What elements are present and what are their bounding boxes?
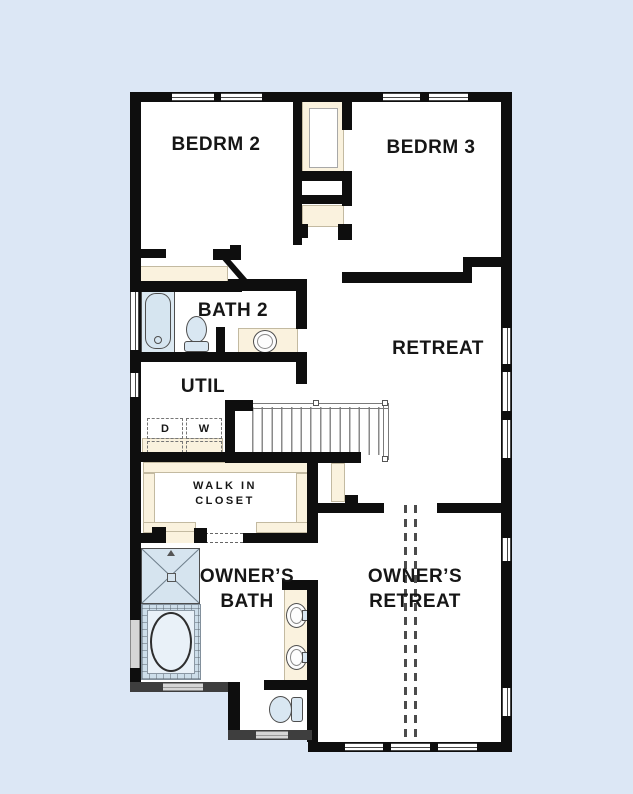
closet-shelf-bottom-right	[256, 522, 308, 533]
window	[383, 93, 421, 101]
window	[130, 292, 139, 350]
window-mullion	[420, 92, 429, 102]
wall-segment	[130, 452, 230, 462]
wall-segment	[225, 452, 361, 463]
wall-segment	[216, 327, 225, 354]
wall-segment	[194, 528, 207, 543]
window	[502, 372, 511, 412]
wall-segment	[463, 257, 472, 283]
window-mullion	[383, 743, 391, 751]
wall-segment	[342, 272, 471, 283]
owners-bathtub-fixture	[150, 612, 192, 672]
wall-segment	[293, 195, 352, 204]
room-label-text: RETREAT	[392, 338, 484, 359]
room-label-walk-in-closet: WALK IN CLOSET	[165, 479, 285, 509]
room-label-util: UTIL	[163, 374, 243, 399]
wall-segment	[225, 400, 253, 411]
floor-plan: BEDRM 2 BEDRM 3 BATH 2 RETREAT UTIL WALK…	[0, 0, 633, 794]
bathtub-drain	[154, 336, 162, 344]
wall-segment	[296, 279, 307, 329]
window	[502, 420, 511, 458]
room-label-owners-retreat: OWNER’S RETREAT	[355, 564, 475, 614]
room-label-text: WALK IN	[165, 479, 285, 494]
wall-segment	[307, 452, 318, 543]
room-label-text: BEDRM 2	[171, 134, 260, 155]
linen-shelf	[331, 463, 345, 502]
wall-segment	[295, 224, 308, 238]
stairs	[252, 407, 385, 455]
wall-segment	[318, 503, 384, 513]
wall-segment	[437, 503, 502, 513]
appliance-label-text: D	[161, 423, 169, 435]
room-label-text: BATH	[187, 589, 307, 614]
bedroom3-closet-interior	[309, 108, 338, 168]
room-label-text: BEDRM 3	[386, 137, 475, 158]
room-label-text: OWNER’S	[355, 564, 475, 589]
wall-segment	[345, 495, 358, 504]
bath2-toilet-tank	[184, 341, 209, 352]
window-mullion	[214, 92, 221, 102]
floor-owners-retreat	[312, 690, 508, 750]
wall-segment	[152, 527, 166, 543]
washer-label: W	[186, 423, 222, 435]
tray-ceiling-dashed-line	[404, 505, 407, 743]
room-label-owners-bath: OWNER’S BATH	[187, 564, 307, 614]
room-label-retreat: RETREAT	[378, 336, 498, 361]
appliance-label-text: W	[199, 423, 209, 435]
room-label-text: OWNER’S	[187, 564, 307, 589]
wall-niche	[163, 533, 195, 543]
wc-toilet-tank	[291, 697, 303, 722]
room-label-bedroom3: BEDRM 3	[361, 135, 501, 160]
window	[429, 93, 468, 101]
room-label-text: RETREAT	[355, 589, 475, 614]
window	[345, 743, 477, 751]
window	[256, 731, 288, 739]
room-label-text: UTIL	[181, 376, 225, 397]
room-label-text: BATH 2	[198, 300, 268, 321]
wall-segment	[230, 245, 241, 260]
wall-segment	[228, 279, 300, 291]
closet-cased-opening	[205, 533, 243, 543]
bath2-sink	[253, 330, 277, 353]
closet-shelf-top	[143, 462, 308, 473]
room-label-text: CLOSET	[165, 494, 285, 509]
dryer-label: D	[147, 423, 183, 435]
railing-post	[382, 456, 388, 462]
wall-segment	[130, 281, 242, 292]
wall-segment	[264, 680, 308, 690]
room-label-bedroom2: BEDRM 2	[146, 132, 286, 157]
wc-toilet-bowl	[269, 696, 292, 723]
window	[130, 373, 139, 397]
wall-segment	[338, 224, 352, 240]
window	[130, 620, 140, 668]
window	[502, 688, 511, 716]
railing-post	[382, 400, 388, 406]
stair-railing-right	[383, 403, 389, 460]
window-mullion	[430, 743, 438, 751]
tray-ceiling-dashed-line	[414, 505, 417, 743]
closet-shelf-left	[143, 473, 155, 528]
shower-drain	[167, 573, 176, 582]
window	[502, 328, 511, 365]
wall-segment	[307, 580, 318, 742]
window	[502, 538, 511, 561]
window	[163, 683, 203, 691]
railing-post	[313, 400, 319, 406]
room-label-bath2: BATH 2	[173, 298, 293, 323]
shower-head-icon	[167, 550, 175, 556]
